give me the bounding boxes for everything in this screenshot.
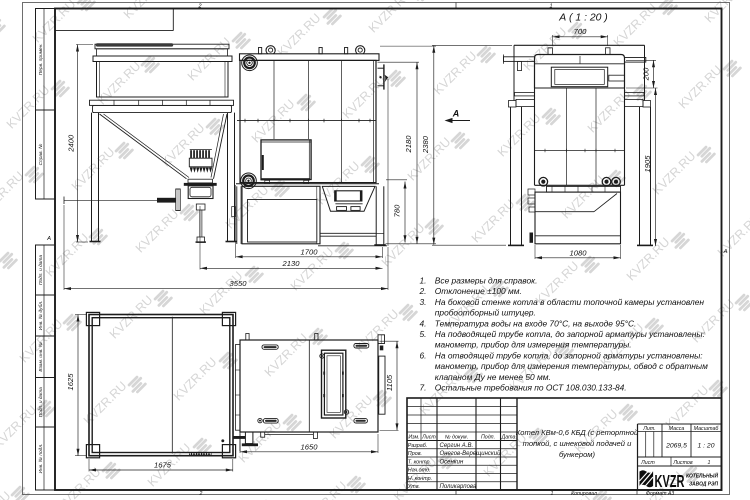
svg-text:1625: 1625 [66,373,75,391]
svg-text:Нач.отд.: Нач.отд. [408,468,431,474]
svg-text:Дата: Дата [501,434,516,440]
svg-text:1105: 1105 [385,374,394,391]
svg-text:2069,5: 2069,5 [665,443,687,450]
svg-text:2.: 2. [419,286,427,296]
svg-text:пробоотборный штуцер.: пробоотборный штуцер. [435,308,536,318]
svg-text:Лист: Лист [640,460,655,466]
svg-text:KVZR: KVZR [655,471,685,491]
svg-text:Пров.: Пров. [408,451,422,457]
svg-text:№ докум.: № докум. [445,434,468,440]
svg-text:1080: 1080 [570,248,588,257]
svg-text:2: 2 [199,491,203,497]
svg-text:Подп. и дата: Подп. и дата [38,255,44,285]
svg-text:Осенкин: Осенкин [440,459,464,465]
svg-text:Изм.: Изм. [408,434,419,440]
svg-text:А: А [46,236,51,242]
svg-text:2400: 2400 [67,134,76,153]
svg-text:А: А [452,109,460,119]
svg-text:Формат А3: Формат А3 [646,491,674,497]
svg-text:Т. контр.: Т. контр. [408,459,431,465]
svg-text:Н. контр.: Н. контр. [408,476,432,482]
svg-text:1: 1 [551,491,554,497]
svg-text:Взам. инв. №: Взам. инв. № [38,342,44,372]
svg-text:На боковой стенке котла в обла: На боковой стенке котла в области топочн… [435,297,705,307]
svg-text:манометр, прибор для измерения: манометр, прибор для измерения температу… [435,361,708,371]
svg-text:3550: 3550 [230,279,248,288]
svg-text:7.: 7. [420,383,427,393]
svg-text:700: 700 [574,27,587,36]
svg-text:6.: 6. [420,350,427,360]
svg-text:На подводящей трубе котла, до: На подводящей трубе котла, до запорной а… [435,329,705,339]
svg-text:2130: 2130 [282,259,301,268]
svg-text:Перв. примен.: Перв. примен. [38,43,44,75]
svg-text:3.: 3. [420,297,427,307]
svg-text:Лист: Лист [421,434,436,440]
svg-text:Масса: Масса [669,426,685,432]
svg-text:Утв.: Утв. [407,484,420,490]
svg-text:манометр, прибор для измерения: манометр, прибор для измерения температу… [435,340,632,350]
svg-text:Инв. № дубл.: Инв. № дубл. [38,301,44,331]
svg-text:Онегов-Верещинский: Онегов-Верещинский [440,450,502,457]
svg-text:200: 200 [642,67,651,81]
svg-text:Поликарпова: Поликарпова [440,484,477,490]
svg-text:Копировал: Копировал [571,491,597,497]
svg-text:1700: 1700 [301,248,319,257]
svg-text:2180: 2180 [404,135,413,154]
svg-text:5.: 5. [420,329,427,339]
svg-text:2: 2 [197,3,201,9]
svg-text:Листов: Листов [672,460,693,466]
svg-text:4.: 4. [420,318,427,328]
svg-text:1905: 1905 [643,155,652,173]
svg-text:Отклонение ±100 мм.: Отклонение ±100 мм. [435,286,522,296]
svg-text:А: А [723,249,728,255]
svg-text:Справ. №: Справ. № [38,144,44,166]
svg-text:1: 1 [549,3,552,9]
svg-text:Температура воды на входе 70°С: Температура воды на входе 70°С, на выход… [435,318,637,328]
svg-text:КОТЕЛЬНЫЙ: КОТЕЛЬНЫЙ [686,472,719,480]
svg-text:Лит.: Лит. [642,426,655,432]
svg-text:клапаном Ду не менее 50 мм.: клапаном Ду не менее 50 мм. [435,372,551,382]
svg-text:Сергин А.В.: Сергин А.В. [440,443,474,449]
svg-text:1: 1 [708,460,711,466]
svg-text:бункером): бункером) [559,450,596,459]
svg-text:1 : 20: 1 : 20 [697,443,714,450]
svg-text:2380: 2380 [421,135,430,154]
svg-text:топкой, с шнековой подачей и: топкой, с шнековой подачей и [523,439,632,448]
svg-text:Подп. и дата: Подп. и дата [38,387,44,417]
svg-text:А ( 1 : 20 ): А ( 1 : 20 ) [558,13,608,24]
svg-text:Инв. № подл.: Инв. № подл. [38,444,44,474]
svg-text:ЗАВОД РЭП: ЗАВОД РЭП [689,482,719,488]
svg-text:780: 780 [393,204,402,217]
svg-text:Котел КВм-0,6 КБД (с ретортной: Котел КВм-0,6 КБД (с ретортной [516,428,639,437]
svg-text:На отводящей трубе котла, до з: На отводящей трубе котла, до запорной ар… [435,350,703,360]
svg-text:Подп.: Подп. [481,434,495,440]
svg-text:1.: 1. [420,276,427,286]
svg-text:1675: 1675 [154,461,172,470]
svg-text:Масштаб: Масштаб [694,426,720,432]
svg-text:Остальные требования по ОСТ 10: Остальные требования по ОСТ 108.030.133-… [435,383,627,393]
svg-text:Все размеры для справок.: Все размеры для справок. [435,276,538,286]
svg-text:1650: 1650 [301,442,319,451]
svg-text:Разраб.: Разраб. [408,443,428,449]
